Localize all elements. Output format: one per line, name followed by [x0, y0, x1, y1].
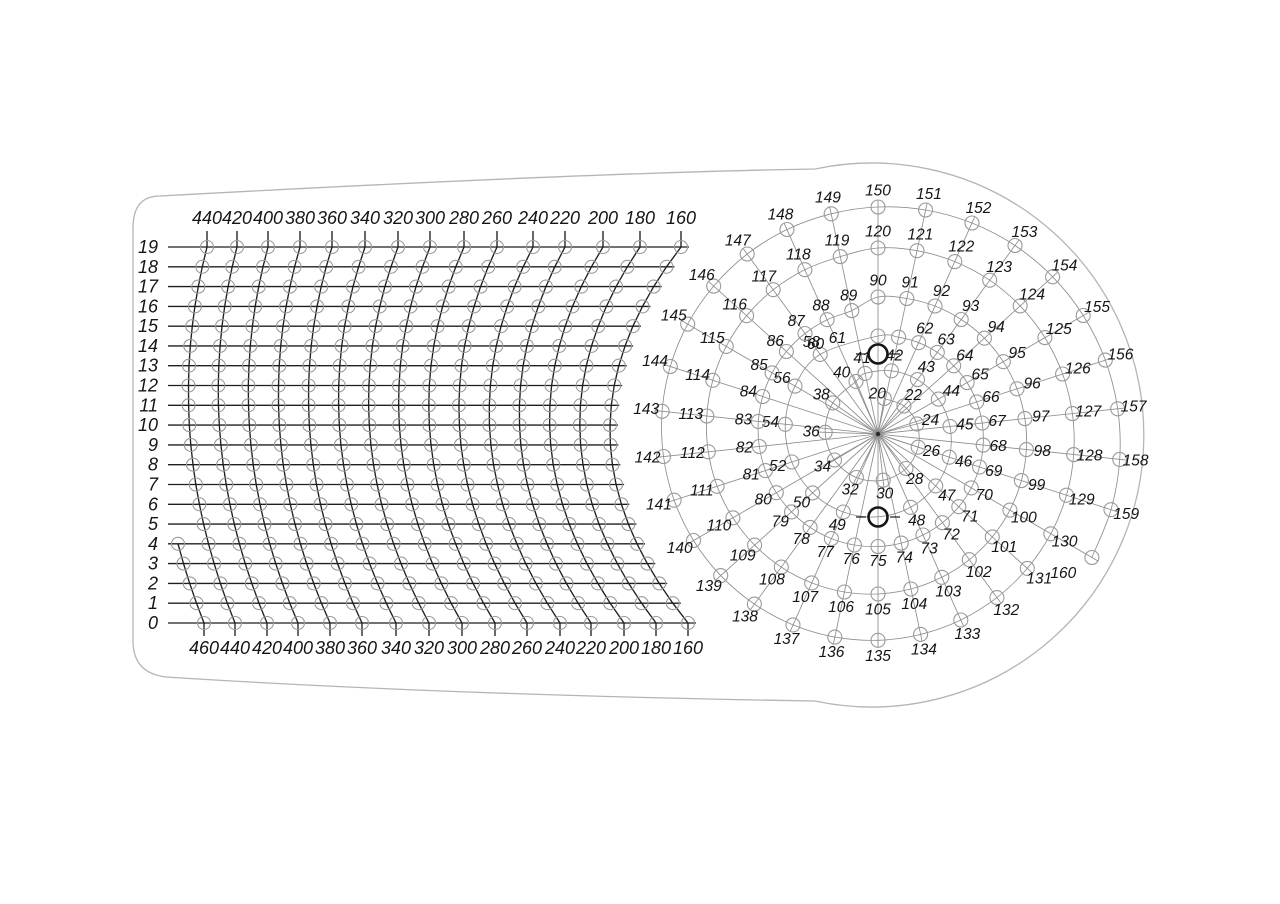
- dial-number-label: 73: [920, 540, 938, 557]
- column-label-bottom: 240: [544, 638, 575, 658]
- column-label-top: 320: [383, 208, 413, 228]
- column-label-bottom: 380: [315, 638, 345, 658]
- column-label-bottom: 340: [381, 638, 411, 658]
- dial-number-label: 138: [732, 609, 758, 626]
- row-label: 11: [139, 395, 158, 415]
- row-label: 15: [138, 316, 159, 336]
- dial-number-label: 45: [956, 416, 974, 433]
- dial-number-label: 32: [842, 482, 860, 499]
- row-label: 0: [148, 613, 158, 633]
- dial-number-label: 93: [962, 298, 980, 315]
- dial-number-label: 112: [680, 445, 705, 462]
- dial-number-label: 89: [840, 288, 858, 305]
- dial-number-label: 157: [1121, 399, 1148, 416]
- dial-number-label: 50: [793, 494, 811, 511]
- dial-number-label: 155: [1084, 299, 1110, 316]
- dial-number-label: 54: [762, 414, 780, 431]
- dial-number-label: 142: [635, 450, 661, 467]
- row-label: 9: [148, 435, 158, 455]
- dial-number-label: 88: [812, 298, 830, 315]
- dial-number-label: 123: [986, 259, 1012, 276]
- dial-number-label: 68: [989, 438, 1007, 455]
- dial-number-label: 99: [1028, 477, 1046, 494]
- dial-number-label: 66: [982, 389, 1000, 406]
- dial-number-label: 152: [966, 200, 992, 217]
- dial-number-label: 127: [1075, 403, 1102, 420]
- dial-number-label: 102: [966, 564, 992, 581]
- column-label-bottom: 200: [608, 638, 639, 658]
- dial-number-label: 84: [740, 383, 758, 400]
- dial-number-label: 74: [896, 549, 914, 566]
- row-label: 8: [148, 455, 158, 475]
- dial-number-label: 48: [908, 513, 926, 530]
- dial-number-label: 118: [786, 247, 811, 264]
- dial-number-label: 141: [646, 497, 672, 514]
- dial-number-label: 92: [933, 283, 951, 300]
- dial-number-label: 80: [755, 492, 773, 509]
- dial-number-label: 134: [911, 642, 937, 659]
- column-label-bottom: 260: [511, 638, 542, 658]
- dial-number-label: 108: [759, 572, 785, 589]
- column-label-top: 220: [549, 208, 580, 228]
- row-label: 17: [138, 277, 159, 297]
- dial-number-label: 28: [905, 471, 924, 488]
- dial-number-label: 95: [1008, 345, 1026, 362]
- dial-number-label: 132: [993, 602, 1019, 619]
- column-label-top: 400: [253, 208, 283, 228]
- dial-number-label: 115: [700, 330, 725, 347]
- dial-number-label: 40: [833, 365, 851, 382]
- dial-number-label: 36: [803, 423, 821, 440]
- dial-number-label: 24: [921, 412, 940, 429]
- column-label-top: 380: [285, 208, 315, 228]
- dial-number-label: 76: [843, 551, 861, 568]
- row-label: 3: [148, 554, 158, 574]
- column-label-bottom: 420: [252, 638, 282, 658]
- dial-number-label: 159: [1113, 506, 1139, 523]
- row-label: 6: [148, 494, 159, 514]
- dial-number-label: 83: [735, 411, 753, 428]
- dial-number-label: 117: [751, 268, 777, 285]
- dial-number-label: 105: [865, 602, 891, 619]
- column-label-top: 420: [222, 208, 252, 228]
- column-label-bottom: 280: [479, 638, 510, 658]
- dial-number-label: 131: [1026, 571, 1052, 588]
- dial-number-label: 63: [937, 332, 955, 349]
- dial-number-label: 146: [689, 267, 715, 284]
- dial-number-label: 75: [869, 553, 887, 570]
- dial-number-label: 94: [988, 319, 1006, 336]
- dial-number-label: 136: [819, 644, 845, 661]
- dial-number-label: 78: [793, 531, 811, 548]
- dial-number-label: 82: [736, 440, 754, 457]
- column-label-bottom: 440: [220, 638, 250, 658]
- column-label-bottom: 300: [447, 638, 477, 658]
- dial-number-label: 91: [901, 274, 918, 291]
- dial-number-label: 145: [661, 308, 687, 325]
- row-label: 12: [138, 376, 158, 396]
- dial-number-label: 86: [767, 333, 785, 350]
- dial-number-label: 34: [814, 459, 832, 476]
- dial-number-label: 69: [985, 463, 1003, 480]
- column-label-top: 280: [448, 208, 479, 228]
- row-label: 13: [138, 356, 158, 376]
- dial-number-label: 116: [722, 297, 747, 314]
- dial-number-label: 124: [1019, 287, 1045, 304]
- row-label: 16: [138, 296, 159, 316]
- dial-number-label: 96: [1024, 375, 1042, 392]
- dial-number-label: 104: [901, 596, 927, 613]
- dial-number-label: 90: [869, 273, 887, 290]
- dial-number-label: 144: [642, 353, 668, 370]
- row-label: 18: [138, 257, 158, 277]
- dial-number-label: 38: [813, 386, 831, 403]
- dial-number-label: 125: [1046, 321, 1072, 338]
- column-label-bottom: 360: [347, 638, 377, 658]
- dial-number-label: 130: [1052, 533, 1078, 550]
- column-label-bottom: 460: [189, 638, 219, 658]
- dial-number-label: 71: [961, 508, 978, 525]
- column-label-bottom: 180: [641, 638, 671, 658]
- dial-number-label: 67: [988, 413, 1007, 430]
- dial-number-label: 46: [955, 453, 973, 470]
- dial-number-label: 111: [690, 483, 714, 500]
- dial-number-label: 140: [667, 540, 693, 557]
- dial-number-label: 150: [865, 183, 891, 200]
- dial-number-label: 129: [1069, 492, 1095, 509]
- column-label-top: 200: [587, 208, 618, 228]
- dial-number-label: 79: [772, 513, 790, 530]
- dial-number-label: 64: [956, 347, 974, 364]
- dial-number-label: 137: [774, 631, 801, 648]
- row-label: 4: [148, 534, 158, 554]
- dial-number-label: 149: [815, 190, 841, 207]
- dial-number-label: 160: [1050, 565, 1076, 582]
- dial-number-label: 158: [1123, 453, 1149, 470]
- column-label-top: 440: [192, 208, 222, 228]
- dial-number-label: 20: [868, 386, 887, 403]
- dial-number-label: 153: [1011, 224, 1037, 241]
- dial-number-label: 113: [678, 406, 703, 423]
- dial-number-label: 151: [916, 186, 942, 203]
- dial-number-label: 98: [1034, 443, 1052, 460]
- dial-number-label: 43: [918, 359, 936, 376]
- dial-number-label: 72: [943, 526, 961, 543]
- dial-number-label: 81: [743, 467, 760, 484]
- column-label-top: 300: [415, 208, 445, 228]
- row-label: 1: [148, 593, 158, 613]
- template-outline: [133, 163, 1144, 707]
- column-label-top: 180: [625, 208, 655, 228]
- row-label: 19: [138, 237, 158, 257]
- dial-number-label: 109: [730, 547, 756, 564]
- dial-number-label: 77: [817, 544, 836, 561]
- dial-number-label: 147: [725, 233, 752, 250]
- column-label-bottom: 160: [673, 638, 703, 658]
- column-label-top: 360: [317, 208, 347, 228]
- column-label-bottom: 400: [283, 638, 313, 658]
- dial-number-label: 121: [907, 227, 933, 244]
- row-label: 14: [138, 336, 158, 356]
- dial-number-label: 44: [943, 383, 961, 400]
- dial-number-label: 126: [1065, 361, 1091, 378]
- dial-number-label: 148: [768, 206, 794, 223]
- dial-number-label: 106: [828, 599, 854, 616]
- dial-number-label: 22: [904, 387, 923, 404]
- dial-number-label: 154: [1052, 258, 1078, 275]
- dial-number-label: 143: [633, 401, 659, 418]
- dial-number-label: 119: [825, 232, 850, 249]
- column-label-top: 340: [350, 208, 380, 228]
- dial-number-label: 135: [865, 648, 891, 665]
- column-label-top: 260: [481, 208, 512, 228]
- dial-number-label: 62: [916, 321, 934, 338]
- dial-number-label: 114: [685, 367, 710, 384]
- dial-number-label: 101: [991, 539, 1017, 556]
- drawing-canvas: 0123456789101112131415161718194604404404…: [0, 0, 1280, 904]
- row-label: 10: [138, 415, 158, 435]
- dial-number-label: 122: [948, 239, 974, 256]
- dial-center-point: [876, 432, 880, 436]
- dial-number-label: 128: [1077, 448, 1103, 465]
- dial-number-label: 87: [788, 313, 807, 330]
- dial-number-label: 107: [792, 589, 819, 606]
- row-label: 7: [148, 475, 159, 495]
- row-label: 2: [147, 573, 158, 593]
- dial-number-label: 103: [935, 583, 961, 600]
- dial-number-label: 85: [750, 357, 768, 374]
- technical-drawing: 0123456789101112131415161718194604404404…: [0, 0, 1280, 904]
- column-label-bottom: 320: [414, 638, 444, 658]
- dial-number-label: 120: [865, 224, 891, 241]
- dial-number-label: 70: [976, 487, 994, 504]
- column-label-bottom: 220: [575, 638, 606, 658]
- dial-number-label: 61: [829, 330, 846, 347]
- row-label: 5: [148, 514, 159, 534]
- column-label-top: 240: [517, 208, 548, 228]
- column-label-top: 160: [666, 208, 696, 228]
- dial-number-label: 156: [1108, 347, 1134, 364]
- dial-number-label: 100: [1011, 510, 1037, 527]
- dial-number-label: 110: [707, 517, 732, 534]
- dial-number-label: 26: [922, 443, 941, 460]
- dial-number-label: 139: [696, 578, 722, 595]
- dial-number-label: 65: [971, 367, 989, 384]
- dial-number-label: 30: [876, 486, 894, 503]
- dial-number-label: 97: [1032, 408, 1051, 425]
- dial-number-label: 133: [954, 626, 980, 643]
